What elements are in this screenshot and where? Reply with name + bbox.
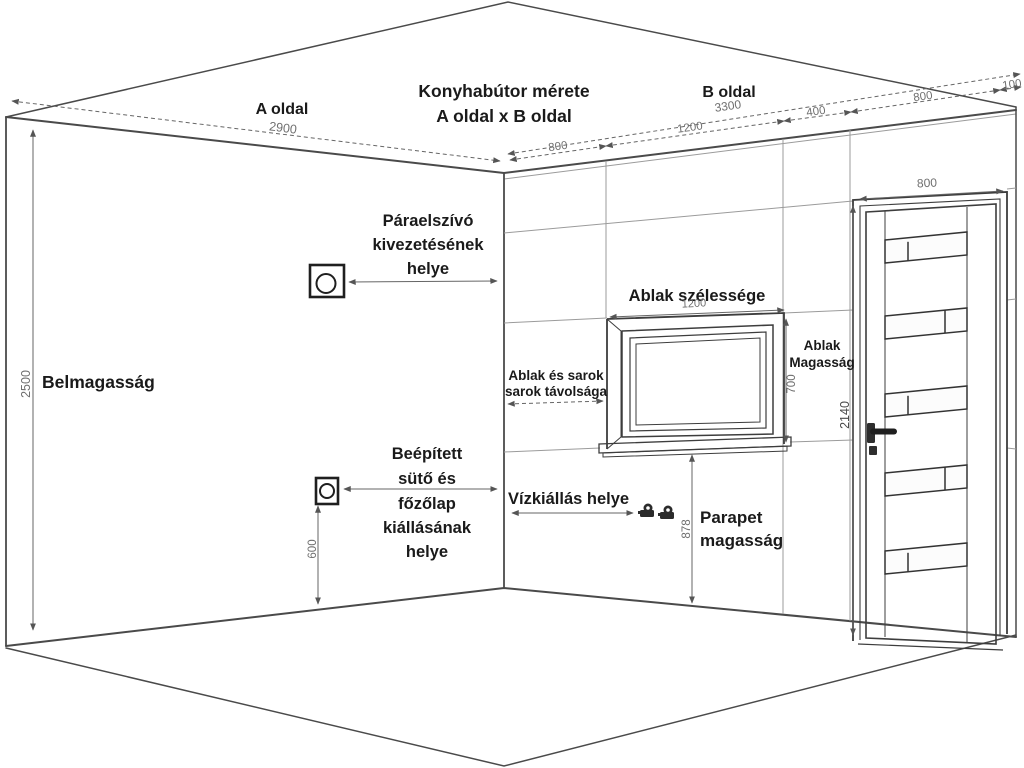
door-band [885, 232, 967, 263]
oven-label-line4: kiállásának [383, 519, 472, 537]
parapet-dim: 878 [681, 519, 693, 538]
dim-line-window-corner [508, 401, 603, 404]
window-frame [622, 325, 773, 437]
door-band [885, 465, 967, 496]
door [853, 192, 1007, 650]
oven-label-line1: Beépített [392, 445, 463, 463]
wall-bottom-edges [6, 588, 1016, 646]
oven-label-line2: sütő és [398, 470, 456, 488]
extractor-leader-arrow [349, 281, 497, 282]
b-segment-dim-5: 100 [1002, 78, 1023, 93]
grid-horizontal-sill-level [504, 440, 1016, 452]
oven-height-dim: 600 [307, 539, 319, 558]
extractor-label-line3: helye [407, 260, 449, 278]
window-glass [636, 338, 760, 425]
door-width-dim: 800 [917, 175, 938, 190]
door-height-dim: 2140 [838, 401, 852, 429]
window-corner-label-line2: sarok távolsága [505, 384, 608, 399]
extractor-label-line2: kivezetésének [373, 236, 485, 254]
dimension-lines [12, 74, 1021, 635]
b-segment-dim-3: 400 [806, 105, 827, 120]
oven-socket-icon [316, 478, 338, 504]
oven-label-line3: főzőlap [398, 495, 456, 513]
water-valve-icon [658, 506, 674, 520]
parapet-label-line2: magasság [700, 531, 783, 550]
diagram-title-line1: Konyhabútor mérete [418, 81, 589, 101]
door-bands [885, 232, 967, 574]
window-sill [599, 437, 791, 453]
door-handle [867, 423, 897, 455]
extractor-label-line1: Páraelszívó [383, 212, 474, 230]
window [599, 313, 791, 457]
room-perspective-drawing: Konyhabútor mérete A oldal x B oldal A o… [0, 0, 1024, 768]
door-keyhole [869, 446, 877, 455]
door-threshold [858, 644, 1003, 650]
extractor-outlet-icon [310, 265, 344, 297]
diagram-title-line2: A oldal x B oldal [436, 106, 571, 126]
b-segment-dim-1: 800 [548, 140, 569, 155]
door-band [885, 543, 967, 574]
window-height-label-line2: Magasság [789, 355, 854, 370]
b-segment-dim-4: 800 [913, 90, 934, 105]
water-outlet-label: Vízkiállás helye [508, 490, 629, 508]
a-side-dim: 2900 [268, 119, 297, 136]
ceiling-height-dim: 2500 [19, 370, 33, 398]
water-outlet-icons [638, 504, 674, 520]
kitchen-dimension-diagram: Konyhabútor mérete A oldal x B oldal A o… [0, 0, 1024, 768]
ceiling-height-label: Belmagasság [42, 372, 155, 392]
wall-top-inner-line [504, 114, 1016, 179]
water-valve-icon [638, 504, 654, 518]
window-sash [630, 332, 766, 431]
door-stiles [885, 207, 967, 642]
window-height-dim: 700 [786, 374, 798, 393]
door-frame-inner [860, 199, 1000, 640]
dim-line-door-width [860, 191, 1003, 199]
b-segment-dim-2: 1200 [676, 120, 703, 135]
b-side-dim: 3300 [714, 97, 743, 115]
window-jamb-reveal [607, 319, 621, 449]
parapet-label-line1: Parapet [700, 508, 763, 527]
oven-label-line5: helye [406, 543, 448, 561]
a-side-label: A oldal [256, 101, 309, 118]
door-band [885, 386, 967, 417]
window-height-label-line1: Ablak [804, 338, 841, 353]
door-band [885, 308, 967, 339]
window-corner-label-line1: Ablak és sarok [508, 368, 604, 383]
floor-near-edges [6, 635, 1016, 766]
window-width-dim: 1200 [681, 297, 706, 310]
